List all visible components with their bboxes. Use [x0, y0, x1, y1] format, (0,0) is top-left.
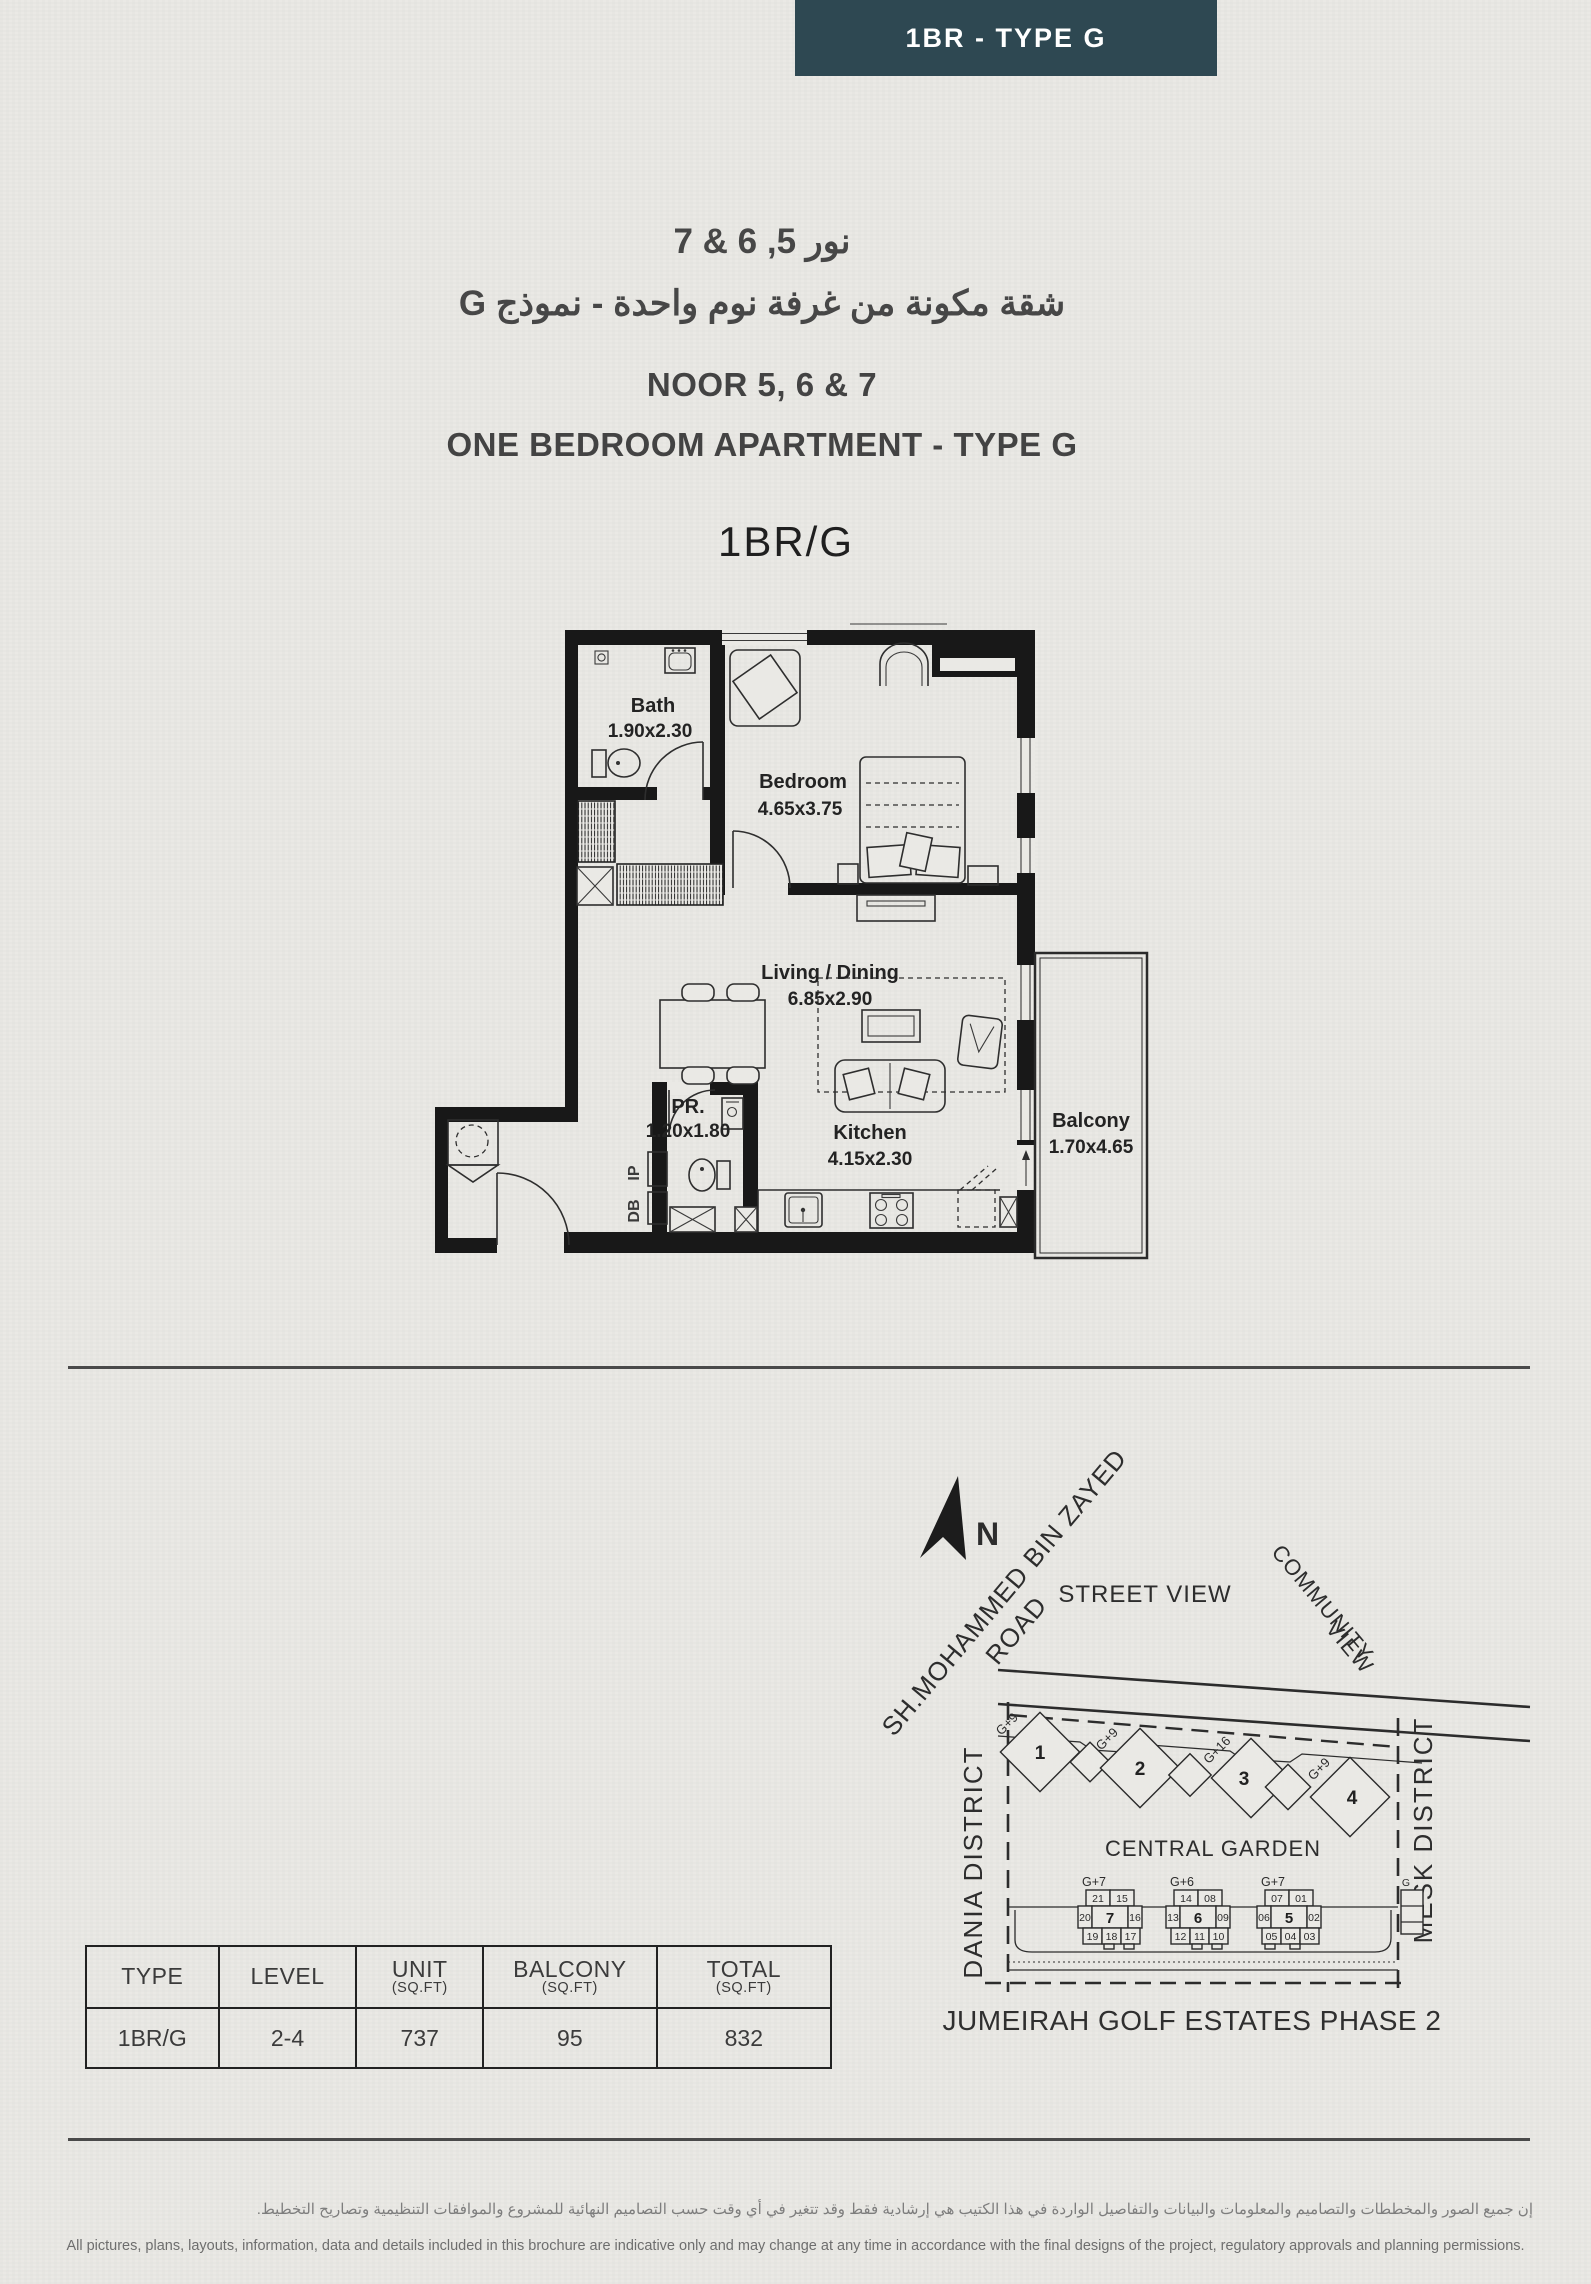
divider-bottom	[68, 2138, 1530, 2141]
sofa-icon	[835, 1060, 945, 1112]
area-table-data-row: 1BR/G 2-4 737 95 832	[86, 2008, 831, 2068]
unit-cell: 13	[1167, 1912, 1179, 1924]
tower-1-number: 1	[1035, 1743, 1046, 1764]
north-label: N	[976, 1516, 1000, 1552]
col-total: TOTAL	[707, 1956, 782, 1982]
col-balcony-sub: (SQ.FT)	[485, 1981, 655, 1996]
room-dim-living: 6.85x2.90	[788, 989, 873, 1010]
tower-4-number: 4	[1347, 1788, 1358, 1809]
unit-cell-highlighted: 17	[1125, 1931, 1137, 1943]
shaft-kitchen	[1000, 1197, 1017, 1227]
unit-cell: 01	[1295, 1893, 1307, 1905]
site-map: N SH.MOHAMMED BIN ZAYED ROAD STREET VIEW…	[870, 1440, 1560, 2070]
dania-district-label: DANIA DISTRICT	[958, 1745, 988, 1978]
col-type: TYPE	[121, 1963, 183, 1989]
cell-total: 832	[657, 2008, 831, 2068]
dining-table-icon	[660, 984, 765, 1084]
unit-cell-highlighted: 10	[1213, 1931, 1225, 1943]
room-dim-bath: 1.90x2.30	[608, 721, 693, 742]
col-unit-sub: (SQ.FT)	[358, 1981, 481, 1996]
unit-cell: 09	[1217, 1912, 1229, 1924]
unit-cell: 03	[1304, 1931, 1316, 1943]
bath-drain-icon	[595, 651, 608, 664]
tower-3-number: 3	[1239, 1769, 1250, 1790]
building-7-height: G+7	[1082, 1875, 1106, 1889]
shafts-pr-bottom	[670, 1207, 757, 1232]
bath-toilet-icon	[592, 749, 640, 777]
label-ip: IP	[626, 1165, 643, 1180]
divider-top	[68, 1366, 1530, 1369]
room-dim-pr: 1.20x1.80	[646, 1121, 731, 1142]
title-english-line2: ONE BEDROOM APARTMENT - TYPE G	[0, 426, 1524, 464]
cell-level: 2-4	[219, 2008, 357, 2068]
tower-1-height: G+9	[993, 1710, 1021, 1738]
building-6: G+6 14 08 13 6 09 12 11 10	[1166, 1875, 1230, 1949]
unit-cell: 02	[1308, 1912, 1320, 1924]
balcony-door	[1017, 1145, 1035, 1190]
tv-console-icon	[857, 895, 935, 921]
disclaimer-arabic: إن جميع الصور والمخططات والتصاميم والمعل…	[100, 2200, 1533, 2218]
building-7: G+7 21 15 20 7 16 19 18 17	[1078, 1875, 1142, 1949]
nightstand-left	[838, 864, 858, 884]
crib-icon	[880, 643, 928, 686]
type-badge: 1BR - TYPE G	[795, 0, 1217, 76]
cell-unit: 737	[356, 2008, 483, 2068]
room-label-balcony: Balcony	[1052, 1110, 1131, 1132]
unit-cell: 06	[1258, 1912, 1270, 1924]
phase-label: JUMEIRAH GOLF ESTATES PHASE 2	[943, 2005, 1442, 2036]
building-5: G+7 07 01 06 5 02 05 04 03	[1257, 1875, 1321, 1949]
room-label-living: Living / Dining	[761, 962, 899, 984]
laundry-shaft	[448, 1120, 498, 1182]
unit-cell: 11	[1194, 1931, 1205, 1943]
central-garden-label: CENTRAL GARDEN	[1105, 1836, 1321, 1861]
col-unit: UNIT	[392, 1956, 448, 1982]
area-table-header-row: TYPE LEVEL UNIT(SQ.FT) BALCONY(SQ.FT) TO…	[86, 1946, 831, 2008]
coffee-table-icon	[862, 1010, 920, 1042]
room-dim-bedroom: 4.65x3.75	[758, 799, 843, 820]
pr-toilet-icon	[689, 1159, 730, 1191]
label-db: DB	[626, 1199, 643, 1222]
unit-cell: 21	[1092, 1893, 1104, 1905]
unit-cell: 14	[1180, 1893, 1192, 1905]
unit-cell: 08	[1204, 1893, 1216, 1905]
fridge-icon	[958, 1166, 996, 1227]
unit-cell: 18	[1106, 1931, 1118, 1943]
unit-cell: 19	[1087, 1931, 1099, 1943]
walls	[435, 624, 1035, 1253]
room-dim-kitchen: 4.15x2.30	[828, 1149, 913, 1170]
unit-cell: 20	[1079, 1912, 1091, 1924]
stove-icon	[870, 1193, 913, 1228]
room-label-pr: PR.	[671, 1096, 704, 1118]
title-arabic-line1: نور 5, 6 & 7	[0, 222, 1524, 262]
road-lines	[998, 1670, 1530, 1763]
unit-cell: 07	[1271, 1893, 1283, 1905]
bed-icon	[860, 757, 965, 883]
floor-plan: Bath 1.90x2.30 Bedroom 4.65x3.75 Living …	[430, 620, 1190, 1300]
nightstand-right	[968, 866, 998, 885]
brochure-page: 1BR - TYPE G نور 5, 6 & 7 شقة مكونة من غ…	[0, 0, 1591, 2284]
unit-cell: 15	[1116, 1893, 1128, 1905]
wardrobe-closet	[578, 801, 615, 862]
title-english-line1: NOOR 5, 6 & 7	[0, 366, 1524, 404]
shaft-box	[577, 867, 613, 905]
armchair-icon	[957, 1015, 1003, 1070]
col-total-sub: (SQ.FT)	[659, 1981, 829, 1996]
door-bedroom	[733, 831, 790, 888]
room-label-kitchen: Kitchen	[833, 1122, 906, 1144]
building-5-number: 5	[1285, 1910, 1293, 1927]
balcony-outline	[1035, 953, 1147, 1258]
col-level: LEVEL	[250, 1963, 324, 1989]
room-label-bedroom: Bedroom	[759, 771, 847, 793]
room-label-bath: Bath	[631, 695, 675, 717]
type-badge-label: 1BR - TYPE G	[905, 23, 1106, 54]
unit-code-label: 1BR/G	[0, 518, 1572, 566]
building-6-number: 6	[1194, 1910, 1202, 1927]
unit-cell: 12	[1175, 1931, 1187, 1943]
unit-cell-highlighted: 05	[1266, 1931, 1278, 1943]
unit-cell: 16	[1129, 1912, 1141, 1924]
kitchen-sink-icon	[785, 1193, 822, 1227]
title-arabic-line2: شقة مكونة من غرفة نوم واحدة - نموذج G	[0, 284, 1524, 324]
cell-balcony: 95	[483, 2008, 657, 2068]
bath-sink-icon	[665, 648, 695, 673]
area-table: TYPE LEVEL UNIT(SQ.FT) BALCONY(SQ.FT) TO…	[85, 1945, 832, 2069]
cell-type: 1BR/G	[86, 2008, 219, 2068]
shoe-closet	[617, 864, 723, 905]
window-top	[722, 630, 807, 645]
unit-cell: 04	[1285, 1931, 1297, 1943]
tower-2-number: 2	[1135, 1759, 1146, 1780]
disclaimer-english: All pictures, plans, layouts, informatio…	[40, 2238, 1551, 2254]
north-arrow-icon: N	[920, 1476, 1000, 1560]
room-dim-balcony: 1.70x4.65	[1049, 1137, 1134, 1158]
door-entry	[497, 1173, 569, 1245]
building-5-height: G+7	[1261, 1875, 1285, 1889]
col-balcony: BALCONY	[513, 1956, 626, 1982]
building-6-height: G+6	[1170, 1875, 1194, 1889]
building-7-number: 7	[1106, 1910, 1114, 1927]
partial-building-label: G	[1402, 1877, 1410, 1889]
lounge-chair-icon	[730, 650, 800, 726]
street-view-label: STREET VIEW	[1058, 1581, 1231, 1608]
